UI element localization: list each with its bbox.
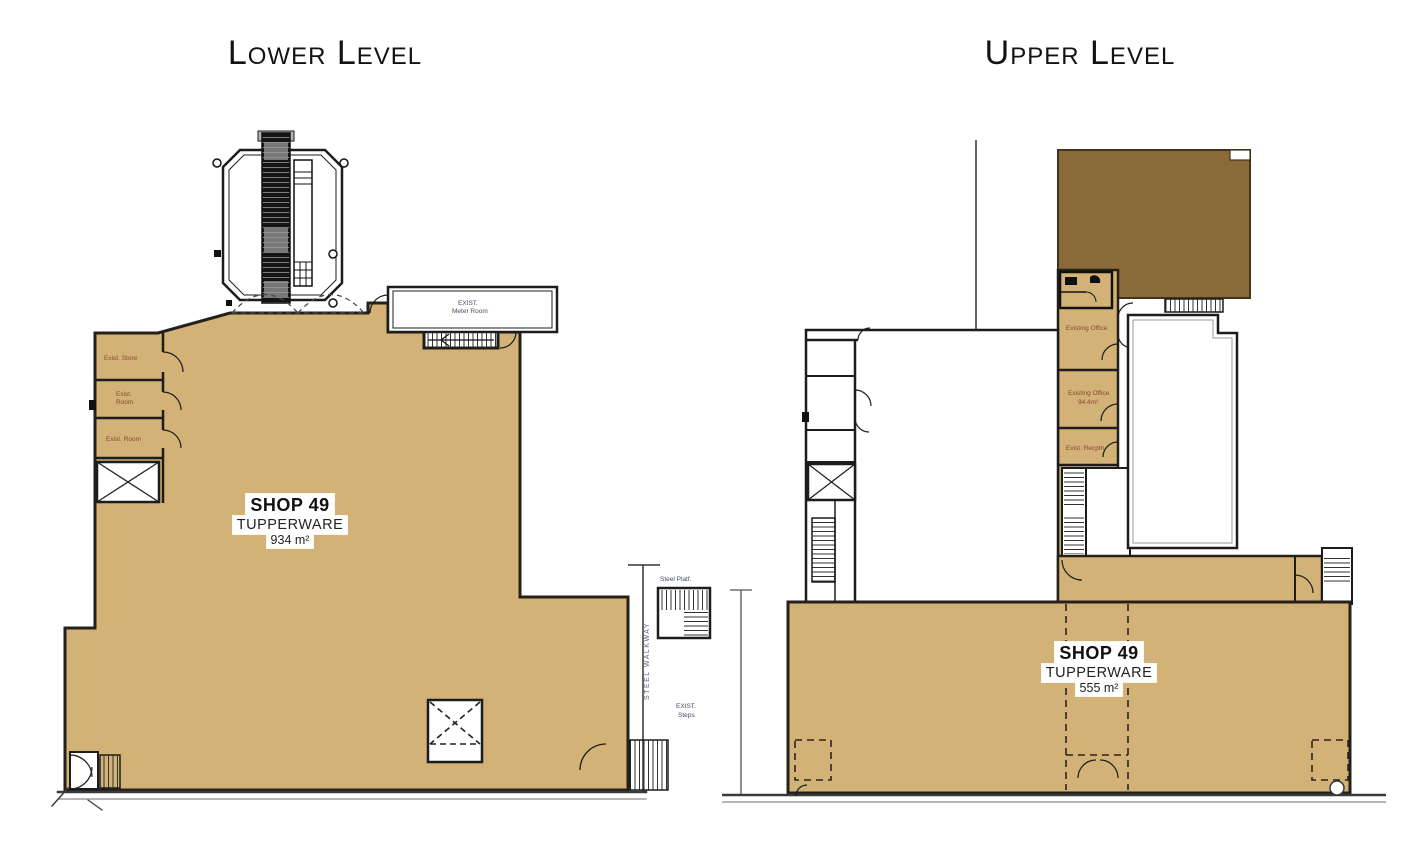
exist-steps-label-1: EXIST.	[676, 703, 696, 710]
upper-shop-area	[788, 602, 1350, 793]
floor-plan-page: EXIST. Meter Room Exist. Store E	[0, 0, 1409, 861]
escalator	[213, 131, 348, 307]
lower-shop-tenant: TUPPERWARE	[233, 516, 348, 534]
upper-shop-tenant: TUPPERWARE	[1042, 664, 1157, 682]
upper-level-title: Upper Level	[930, 34, 1230, 73]
meter-room-label-1: EXIST.	[458, 300, 478, 307]
lower-shop-name: SHOP 49	[246, 494, 333, 517]
meter-room-label-2: Meter Room	[452, 308, 488, 315]
existing-office2-label-1: Existing Office	[1068, 390, 1110, 397]
lower-shop-label: SHOP 49 TUPPERWARE 934 m²	[215, 494, 365, 548]
lower-baseline	[52, 788, 646, 810]
exist-store-label: Exist. Store	[104, 355, 138, 362]
upper-shop-area-value: 555 m²	[1076, 681, 1123, 697]
lower-sw-entry	[70, 752, 120, 789]
exist-recptn-label: Exist. Recptn	[1066, 445, 1105, 452]
exist-steps-label-2: Steps	[678, 712, 695, 719]
upper-shop-label: SHOP 49 TUPPERWARE 555 m²	[1024, 642, 1174, 696]
upper-corridor-stair	[1062, 468, 1130, 556]
exist-room-label: Exist. Room	[106, 436, 141, 443]
upper-left-stair	[812, 518, 835, 582]
steel-walkway-label: STEEL WALKWAY	[644, 622, 651, 700]
exist-room-small-label-1: Exist.	[116, 391, 132, 398]
roller-shutter-door	[428, 700, 482, 762]
upper-level-plan: Existing Office Existing Office 94.4m² E…	[722, 140, 1386, 802]
upper-right-room	[1128, 315, 1237, 548]
floor-plan-drawing: EXIST. Meter Room Exist. Store E	[0, 0, 1409, 861]
upper-ne-stair	[1165, 299, 1223, 312]
lower-level-title: Lower Level	[175, 34, 475, 73]
upper-shop-name: SHOP 49	[1055, 642, 1142, 665]
sw-steps	[100, 755, 120, 788]
exist-room-small-label-2: Room	[116, 399, 133, 406]
existing-office2-label-2: 94.4m²	[1078, 399, 1099, 406]
upper-tan-strip	[1058, 548, 1352, 604]
upper-grid-line-west	[730, 590, 752, 795]
upper-left-building	[802, 328, 1058, 604]
upper-wc-room	[1060, 272, 1112, 308]
lower-shop-area-value: 934 m²	[267, 533, 314, 549]
lower-level-plan: EXIST. Meter Room Exist. Store E	[52, 131, 710, 810]
steel-walkway-zone: Steel Platf. STEEL WALKWAY EXIST. Steps	[628, 565, 710, 792]
exist-steps-stair	[630, 740, 668, 790]
existing-office-label: Existing Office	[1066, 325, 1108, 332]
steel-platform-label: Steel Platf.	[660, 576, 692, 583]
